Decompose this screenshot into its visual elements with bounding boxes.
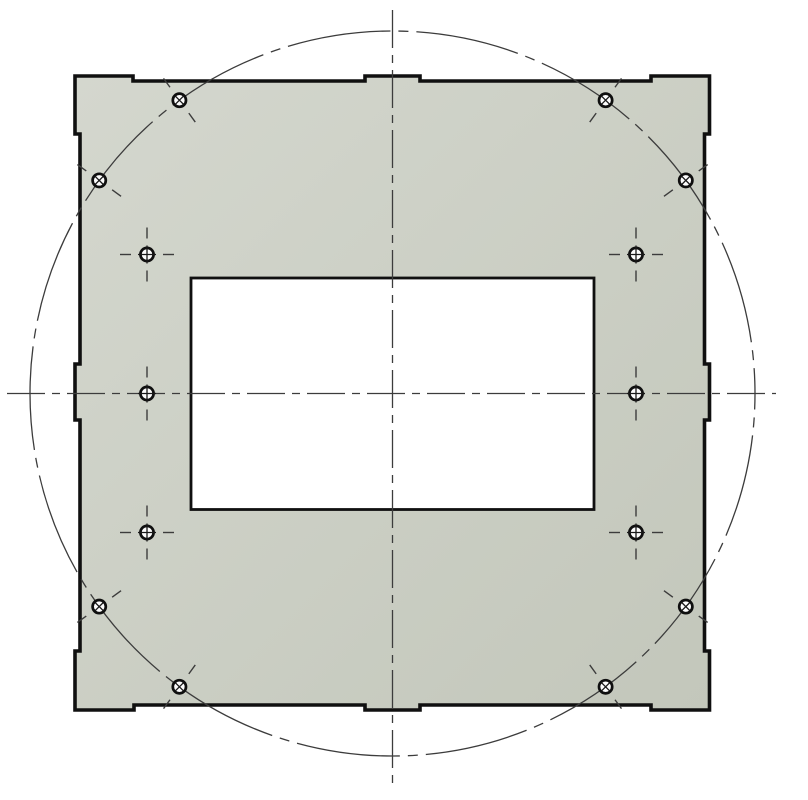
drawing-viewport xyxy=(0,0,808,800)
cad-drawing-canvas xyxy=(0,0,808,800)
